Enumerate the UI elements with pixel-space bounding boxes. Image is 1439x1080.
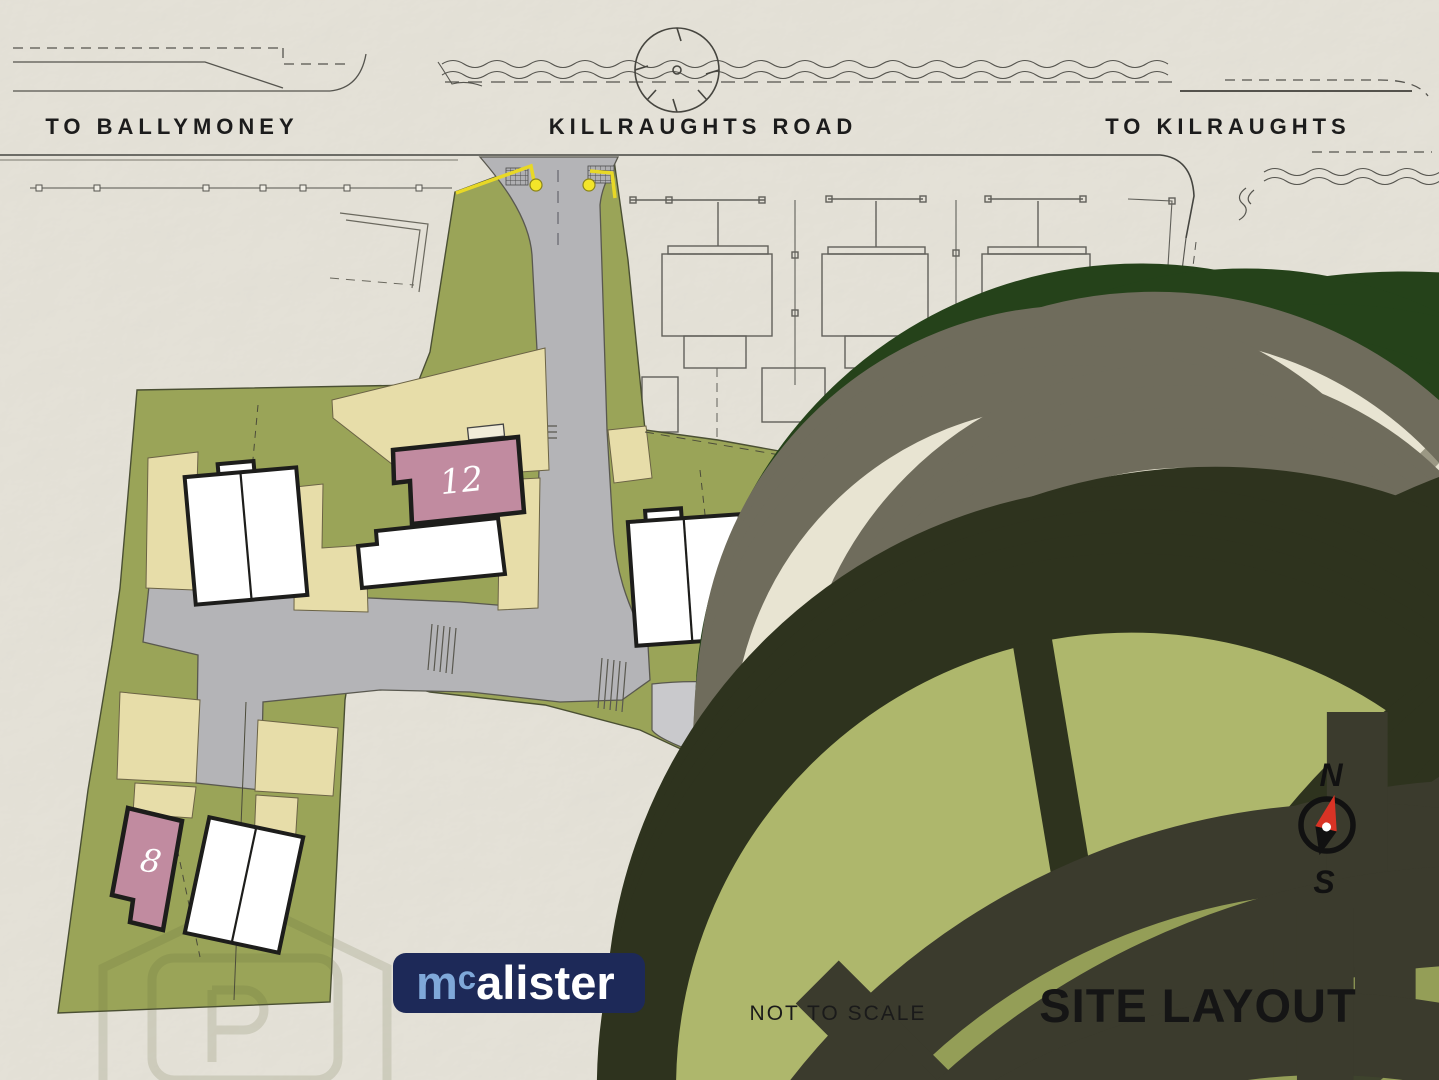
site-layout-drawing: 12 8: [0, 0, 1439, 1080]
plot-12-label: 12: [438, 459, 485, 503]
label-to-kilraughts: TO KILRAUGHTS: [1105, 114, 1350, 139]
house-semi-west: [184, 457, 308, 604]
logo-m: m: [416, 956, 458, 1009]
page-title: SITE LAYOUT: [1039, 979, 1356, 1032]
logo-rest: alister: [476, 956, 614, 1009]
label-killraughts-road: KILLRAUGHTS ROAD: [549, 114, 858, 139]
svg-text:mcalister: mcalister: [416, 956, 615, 1009]
mcalister-logo: mcalister: [393, 953, 645, 1013]
not-to-scale-note: NOT TO SCALE: [750, 1002, 927, 1025]
compass-south-label: S: [1313, 864, 1335, 900]
compass-north-label: N: [1319, 757, 1343, 793]
site-plan-canvas: 12 8: [0, 0, 1439, 1080]
logo-c: c: [458, 959, 476, 996]
label-to-ballymoney: TO BALLYMONEY: [45, 114, 298, 139]
